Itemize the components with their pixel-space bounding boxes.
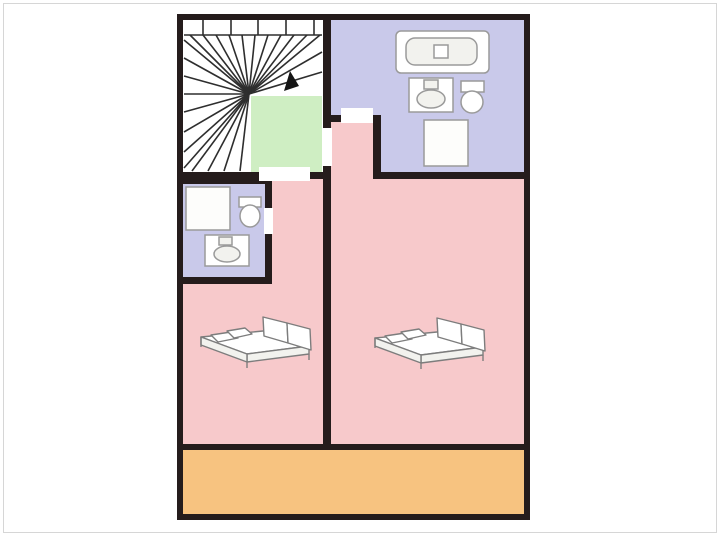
room-landing bbox=[251, 96, 322, 172]
bathroom-main-wall-left-stub bbox=[331, 115, 341, 122]
room-bathroom-small bbox=[183, 184, 265, 277]
room-bathroom-main bbox=[331, 20, 524, 116]
room-bedroom-right bbox=[331, 172, 524, 444]
door-bathroom-small bbox=[264, 208, 273, 234]
door-landing-to-right-bedroom bbox=[322, 128, 332, 166]
divider-wall-upper bbox=[323, 14, 331, 128]
bathroom-main-wall-vertical bbox=[373, 115, 381, 179]
balcony-wall bbox=[177, 444, 530, 450]
room-balcony bbox=[183, 450, 524, 514]
hallway-to-right-bedroom bbox=[331, 116, 373, 172]
bathroom-small-wall-top bbox=[177, 178, 272, 184]
door-bathroom-main bbox=[341, 108, 373, 123]
bathroom-small-wall-right-upper bbox=[265, 178, 272, 210]
room-bathroom-main-extension bbox=[381, 116, 524, 172]
door-landing-to-left-hall bbox=[259, 167, 310, 181]
bathroom-main-wall-bottom bbox=[373, 172, 524, 179]
outer-wall-top bbox=[177, 14, 530, 20]
floor-plan-image bbox=[0, 0, 720, 536]
bathroom-small-wall-bottom bbox=[177, 277, 272, 284]
divider-wall-main bbox=[323, 166, 331, 450]
outer-wall-bottom bbox=[177, 514, 530, 520]
